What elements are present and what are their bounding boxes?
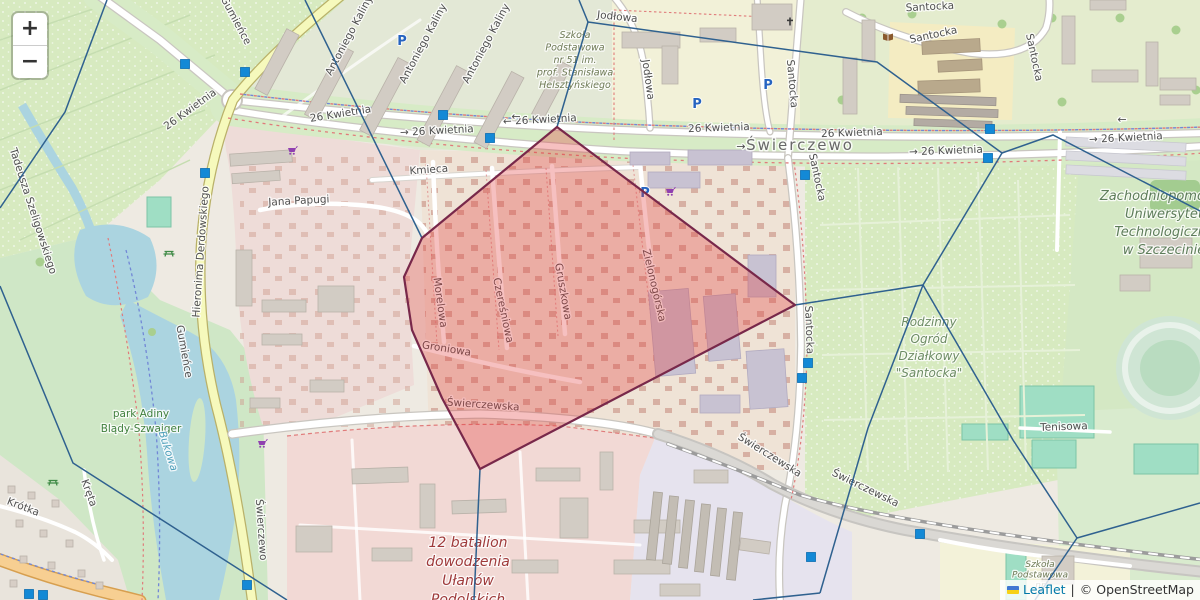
place-label: Szkoła (1025, 560, 1054, 570)
place-label: Podstawowa (1012, 571, 1068, 581)
parking-icon: P (692, 97, 702, 112)
map-marker[interactable] (241, 68, 250, 77)
map-marker[interactable] (181, 60, 190, 69)
place-label: Technologiczny (1114, 225, 1200, 240)
place-label: Działkowy (899, 349, 961, 363)
oneway-arrow: → (736, 140, 745, 153)
place-label: Szkoła (560, 30, 591, 41)
zoom-out-button[interactable]: − (13, 46, 47, 78)
place-label: Podstawowa (545, 43, 604, 54)
ukraine-flag-icon (1007, 586, 1019, 594)
place-label: dowodzenia (426, 554, 510, 570)
street-label: Hieronima Derdowskiego (190, 186, 211, 318)
place-label: "Santocka" (896, 366, 963, 380)
place-label: Ułanów (442, 573, 494, 589)
map-marker[interactable] (39, 591, 48, 600)
place-label: Rodzinny (901, 315, 957, 329)
attribution-bar: Leaflet | © OpenStreetMap (1000, 580, 1200, 600)
place-label: w Szczecinie (1123, 243, 1200, 258)
attribution-separator: | (1070, 580, 1076, 600)
map-marker[interactable] (439, 111, 448, 120)
map-marker[interactable] (804, 359, 813, 368)
map-marker[interactable] (801, 171, 810, 180)
place-label: Blądy-Szwajger (101, 423, 182, 435)
map-marker[interactable] (486, 134, 495, 143)
map-marker[interactable] (201, 169, 210, 178)
map-marker[interactable] (798, 374, 807, 383)
map-tiles: 26 Kwietnia26 Kwietnia→ 26 Kwietnia← 26 … (0, 0, 1200, 600)
oneway-arrow: ← (511, 110, 520, 123)
map-canvas[interactable]: 26 Kwietnia26 Kwietnia→ 26 Kwietnia← 26 … (0, 0, 1200, 600)
map-marker[interactable] (916, 530, 925, 539)
map-marker[interactable] (807, 553, 816, 562)
district-label: Świerczewo (746, 135, 854, 154)
place-label: Zachodniopomorski (1099, 189, 1200, 204)
street-label: Santocka (802, 305, 816, 354)
oneway-arrow: ← (1117, 113, 1126, 126)
street-label: 26 Kwietnia (688, 121, 750, 135)
parking-icon: P (763, 78, 773, 93)
place-label: Podolskich (431, 592, 505, 600)
zoom-in-button[interactable]: + (13, 13, 47, 46)
parking-icon: P (397, 34, 407, 49)
map-marker[interactable] (984, 154, 993, 163)
picnic-table-icon (164, 252, 175, 257)
place-label: Ogród (911, 332, 948, 346)
place-label: Uniwersytet (1125, 207, 1200, 222)
map-marker[interactable] (986, 125, 995, 134)
map-marker[interactable] (25, 590, 34, 599)
place-label: Helsztyńskiego (539, 80, 611, 91)
osm-attribution: © OpenStreetMap (1080, 580, 1194, 600)
leaflet-link[interactable]: Leaflet (1023, 580, 1066, 600)
zoom-control: + − (13, 13, 47, 78)
map-marker[interactable] (243, 581, 252, 590)
place-label: park Adiny (113, 408, 169, 420)
street-label: Tenisowa (1039, 420, 1088, 434)
place-label: 12 batalion (428, 535, 507, 551)
